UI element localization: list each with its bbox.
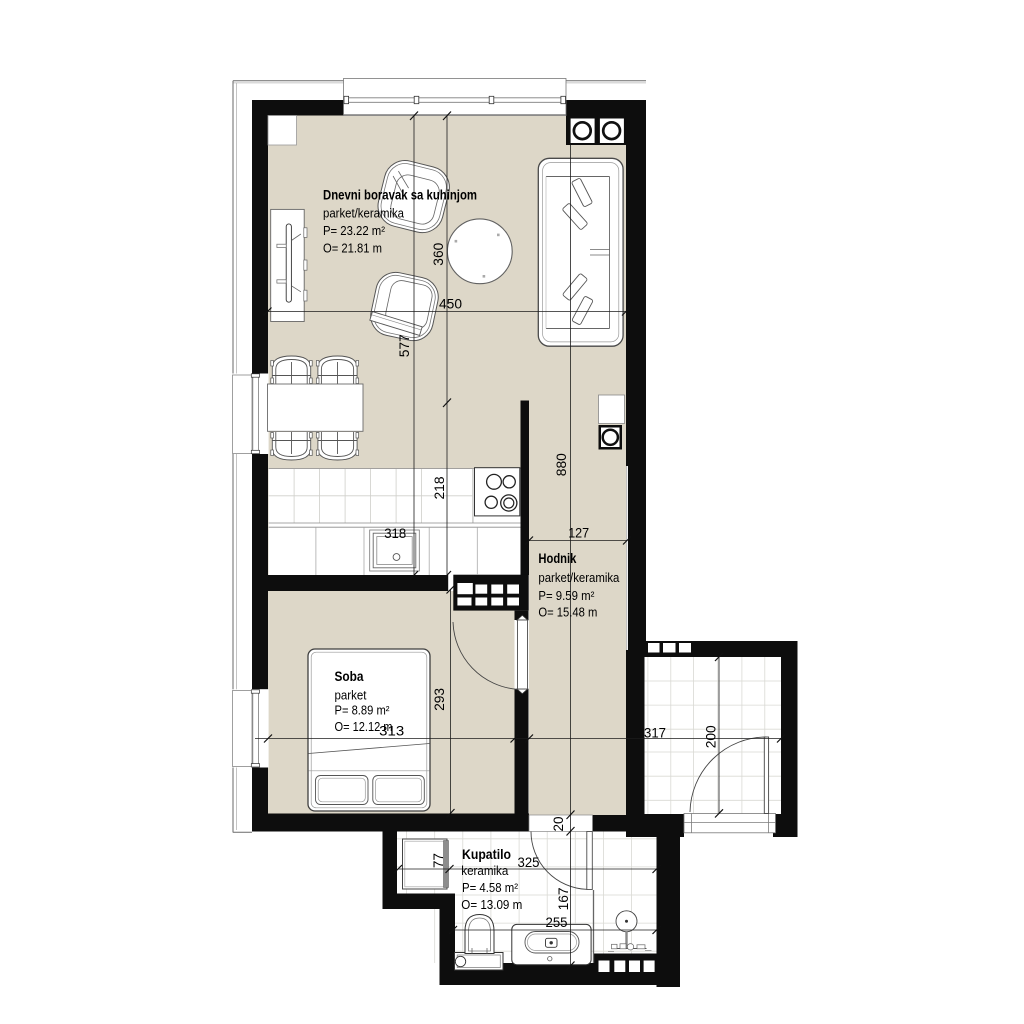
svg-text:parket/keramika: parket/keramika	[538, 570, 620, 585]
svg-text:O= 21.81 m: O= 21.81 m	[323, 240, 382, 255]
svg-text:450: 450	[439, 296, 462, 311]
svg-text:P= 23.22 m²: P= 23.22 m²	[323, 223, 386, 238]
svg-text:77: 77	[431, 853, 446, 868]
svg-text:255: 255	[546, 915, 568, 930]
svg-text:P= 9.59 m²: P= 9.59 m²	[538, 588, 595, 603]
svg-text:O= 13.09 m: O= 13.09 m	[461, 897, 522, 912]
svg-text:P= 4.58 m²: P= 4.58 m²	[462, 880, 519, 895]
svg-text:O= 15.48 m: O= 15.48 m	[538, 604, 597, 619]
svg-text:Hodnik: Hodnik	[538, 551, 576, 566]
svg-text:577: 577	[397, 334, 412, 357]
svg-text:313: 313	[379, 724, 404, 739]
svg-text:P= 8.89 m²: P= 8.89 m²	[335, 702, 391, 717]
svg-text:20: 20	[551, 817, 566, 832]
svg-text:325: 325	[518, 855, 540, 870]
svg-text:parket: parket	[335, 687, 367, 702]
svg-text:Dnevni boravak sa kuhinjom: Dnevni boravak sa kuhinjom	[323, 188, 477, 203]
svg-text:318: 318	[384, 526, 406, 541]
svg-text:127: 127	[568, 526, 589, 541]
svg-text:317: 317	[644, 725, 666, 740]
svg-text:200: 200	[704, 725, 719, 748]
svg-text:keramika: keramika	[461, 863, 509, 878]
svg-text:293: 293	[432, 688, 447, 711]
svg-text:360: 360	[431, 243, 446, 266]
svg-text:218: 218	[432, 477, 447, 500]
svg-text:880: 880	[554, 453, 569, 476]
svg-text:Soba: Soba	[335, 669, 364, 684]
svg-text:parket/keramika: parket/keramika	[323, 206, 405, 221]
svg-text:167: 167	[556, 887, 571, 910]
svg-text:Kupatilo: Kupatilo	[462, 847, 511, 862]
